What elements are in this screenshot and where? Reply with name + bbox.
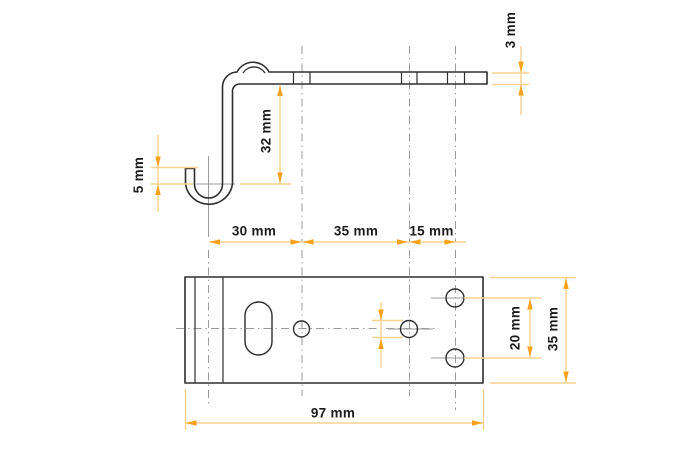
technical-drawing-page: 3 mm 32 mm 5 mm 30 mm 35 mm 15 mm 20 mm … xyxy=(0,0,700,467)
dim-label-97: 97 mm xyxy=(311,406,355,421)
dim-label-20: 20 mm xyxy=(508,306,523,350)
dim-label-35-right: 35 mm xyxy=(546,307,561,351)
dim-label-thickness: 3 mm xyxy=(503,12,518,48)
hook-bracket-drawing: 3 mm 32 mm 5 mm 30 mm 35 mm 15 mm 20 mm … xyxy=(0,0,700,467)
plan-view xyxy=(185,277,483,383)
dim-label-hook-lip: 5 mm xyxy=(131,157,146,193)
embossed-bridge-arc xyxy=(243,67,265,73)
dim-label-height: 32 mm xyxy=(259,109,274,153)
dim-label-35: 35 mm xyxy=(334,224,378,239)
dim-label-15: 15 mm xyxy=(409,224,453,239)
dim-label-30: 30 mm xyxy=(232,224,276,239)
bracket-profile xyxy=(186,62,488,204)
plate-outline xyxy=(185,277,483,383)
side-profile-view xyxy=(186,62,488,204)
